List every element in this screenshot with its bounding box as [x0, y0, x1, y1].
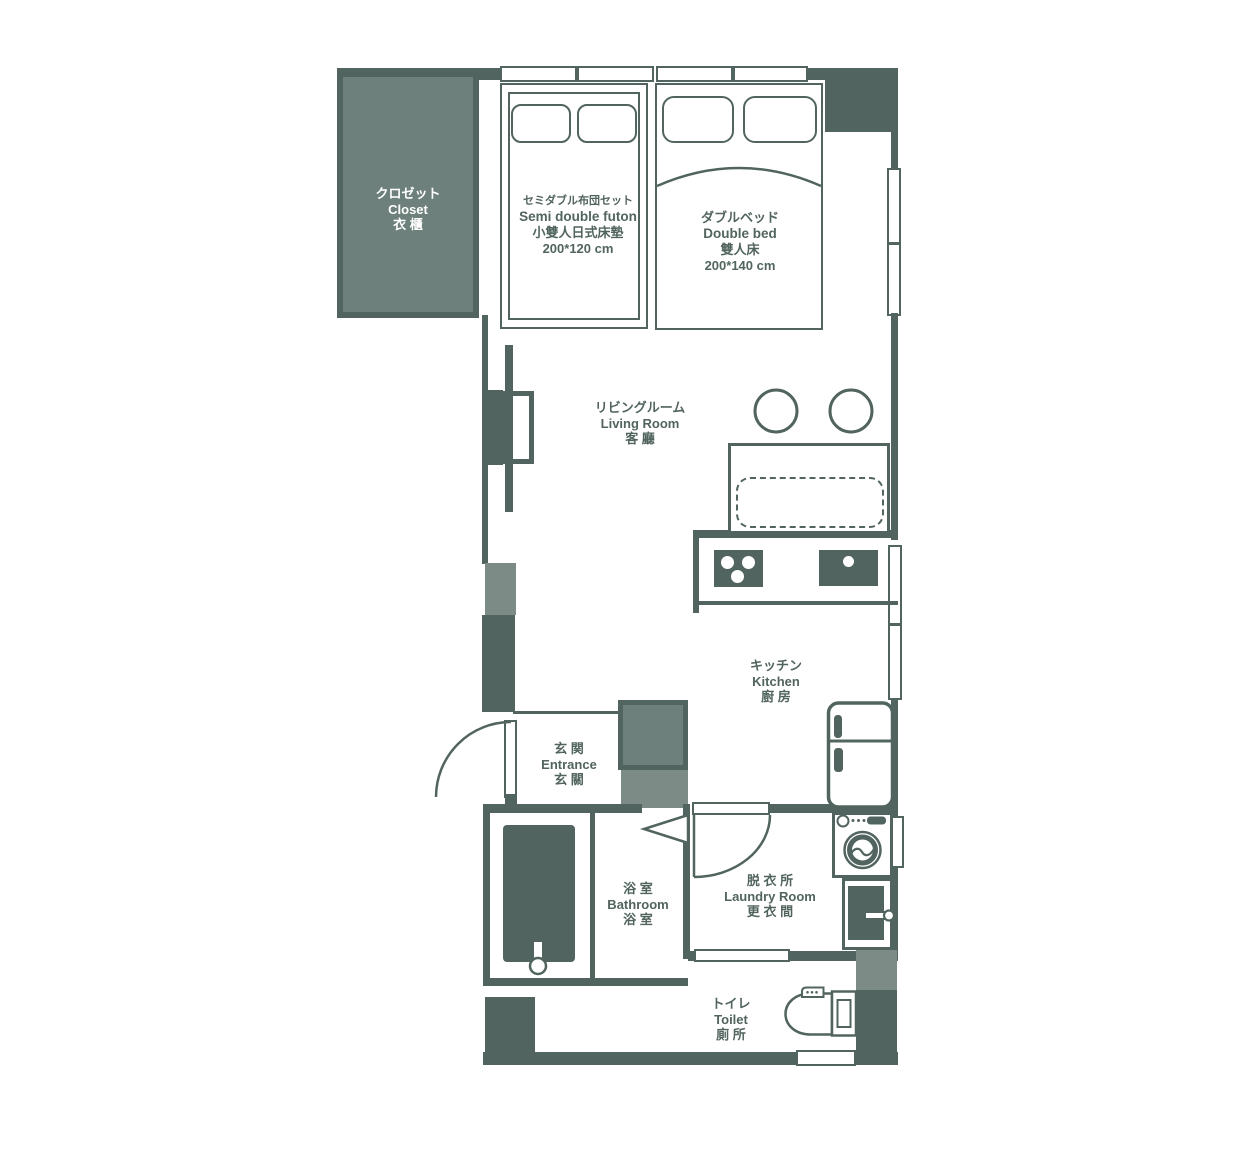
label-line: Laundry Room [724, 889, 816, 905]
label-line: Semi double futon [519, 209, 637, 225]
pillow-icon [577, 104, 637, 143]
window [500, 66, 577, 82]
window [656, 66, 733, 82]
label-line: 廁 所 [711, 1027, 750, 1043]
wall-block [485, 997, 535, 1055]
laundry-door-frame [692, 802, 770, 815]
entrance-door-panel [504, 720, 517, 798]
window [733, 66, 808, 82]
label-line: 玄 関 [541, 741, 597, 757]
bathtub-icon [503, 825, 575, 962]
double-bed-label: ダブルベッド Double bed 雙人床 200*140 cm [701, 210, 779, 274]
label-line: Closet [375, 202, 440, 218]
wall-segment [891, 698, 898, 818]
label-line: 脱 衣 所 [724, 873, 816, 889]
window [887, 168, 901, 244]
toilet-tank [832, 992, 856, 1036]
label-line: キッチン [750, 658, 802, 674]
label-line: リビングルーム [595, 400, 686, 416]
stool-icon [755, 390, 797, 432]
label-line: 浴 室 [607, 881, 668, 897]
toilet-button [811, 991, 814, 994]
label-line: ダブルベッド [701, 210, 779, 226]
toilet-control-panel [802, 988, 824, 998]
floor-plan: クロゼット Closet 衣 櫃 セミダブル布団セット Semi double … [0, 0, 1241, 1153]
laundry-room-label: 脱 衣 所 Laundry Room 更 衣 間 [724, 873, 816, 920]
wall-segment [483, 804, 642, 813]
closet-label: クロゼット Closet 衣 櫃 [375, 186, 440, 233]
washing-machine-icon [832, 812, 893, 878]
kitchen-label: キッチン Kitchen 廚 房 [750, 658, 802, 705]
burner-icon [742, 556, 755, 569]
refrigerator-icon [829, 703, 893, 807]
drain-icon [843, 556, 854, 567]
bathroom-wall [483, 978, 688, 986]
bathroom-folding-door-icon [644, 815, 688, 843]
label-line: 200*120 cm [519, 241, 637, 257]
wall-pillar [856, 950, 897, 990]
toilet-label: トイレ Toilet 廁 所 [711, 996, 750, 1043]
label-line: Living Room [595, 416, 686, 432]
shoe-cabinet-lower [621, 770, 688, 808]
label-line: セミダブル布団セット [519, 193, 637, 209]
burner-icon [721, 556, 734, 569]
label-line: 雙人床 [701, 242, 779, 258]
label-line: 更 衣 間 [724, 904, 816, 920]
bathroom-wall [683, 804, 690, 959]
window [888, 545, 902, 625]
wall-line [513, 711, 620, 714]
window [887, 243, 901, 316]
table-extension-dashed [736, 477, 884, 528]
window [888, 624, 902, 700]
pillow-icon [743, 96, 817, 143]
bathroom-divider-wall [590, 812, 595, 986]
living-room-label: リビングルーム Living Room 客 廳 [595, 400, 686, 447]
refrigerator-handle [834, 715, 842, 738]
wall-pillar [856, 990, 897, 1052]
tv-icon [505, 345, 513, 512]
label-line: 衣 櫃 [375, 217, 440, 233]
toilet-icon [786, 994, 833, 1035]
pillow-icon [511, 104, 571, 143]
toilet-button [806, 991, 809, 994]
window [796, 1050, 856, 1066]
wall-pillar [485, 563, 516, 615]
label-line: トイレ [711, 996, 750, 1012]
window [577, 66, 654, 82]
label-line: Kitchen [750, 674, 802, 690]
label-line: Double bed [701, 226, 779, 242]
wall-corner-block [825, 73, 898, 132]
label-line: 玄 關 [541, 772, 597, 788]
bathroom-label: 浴 室 Bathroom 浴 室 [607, 881, 668, 928]
stool-icon [830, 390, 872, 432]
entrance-door-arc [436, 722, 511, 797]
refrigerator-handle [834, 748, 843, 772]
label-line: 客 廳 [595, 431, 686, 447]
label-line: Bathroom [607, 897, 668, 913]
label-line: クロゼット [375, 186, 440, 202]
toilet-lid [838, 1000, 851, 1027]
futon-label: セミダブル布団セット Semi double futon 小雙人日式床墊 200… [519, 193, 637, 257]
label-line: Entrance [541, 757, 597, 773]
wall-segment [891, 313, 898, 540]
label-line: 廚 房 [750, 689, 802, 705]
toilet-button [815, 991, 818, 994]
bathroom-wall [483, 812, 490, 986]
wall-segment [891, 130, 898, 170]
pillow-icon [662, 96, 734, 143]
wall-segment [482, 462, 488, 564]
label-line: 浴 室 [607, 912, 668, 928]
laundry-door-arc [694, 815, 770, 877]
burner-icon [731, 570, 744, 583]
wall-pillar [482, 390, 503, 465]
label-line: 200*140 cm [701, 258, 779, 274]
sliding-door-frame [694, 949, 790, 962]
label-line: Toilet [711, 1012, 750, 1028]
wall-pillar [482, 615, 515, 712]
entrance-label: 玄 関 Entrance 玄 關 [541, 741, 597, 788]
wall-segment [482, 315, 488, 393]
counter-edge [697, 601, 898, 605]
vanity-handle [864, 911, 886, 920]
label-line: 小雙人日式床墊 [519, 225, 637, 241]
shoe-cabinet [618, 700, 688, 770]
